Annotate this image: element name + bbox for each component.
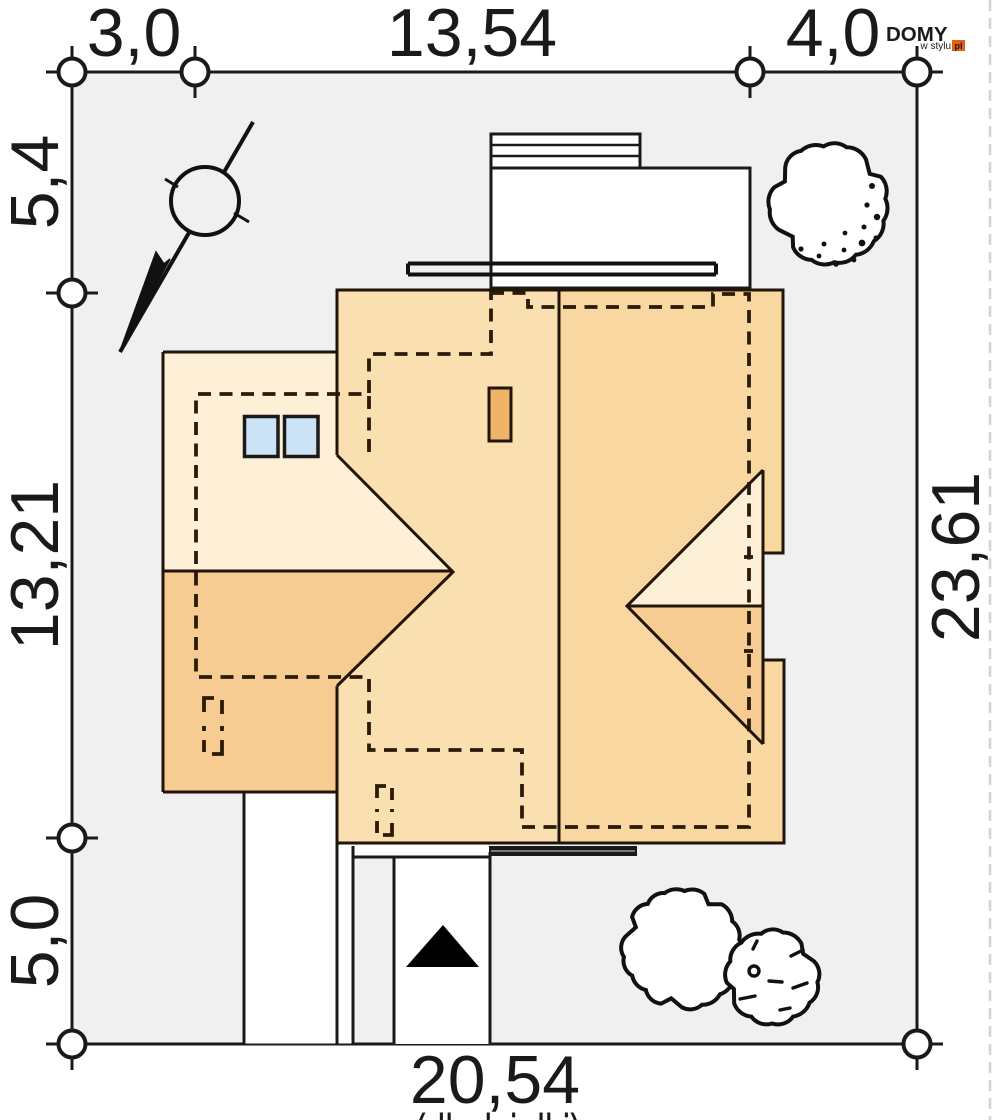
svg-text:5,0: 5,0 (0, 894, 73, 989)
svg-text:3,0: 3,0 (87, 0, 182, 71)
svg-text:4,0: 4,0 (786, 0, 881, 71)
svg-text:5,4: 5,4 (0, 135, 73, 230)
svg-text:13,21: 13,21 (0, 480, 73, 650)
svg-text:w stylu: w stylu (919, 41, 951, 52)
svg-text:23,61: 23,61 (918, 472, 994, 642)
svg-text:pl: pl (955, 41, 963, 51)
svg-text:13,54: 13,54 (387, 0, 557, 71)
svg-text:(dł. działki): (dł. działki) (414, 1103, 582, 1120)
